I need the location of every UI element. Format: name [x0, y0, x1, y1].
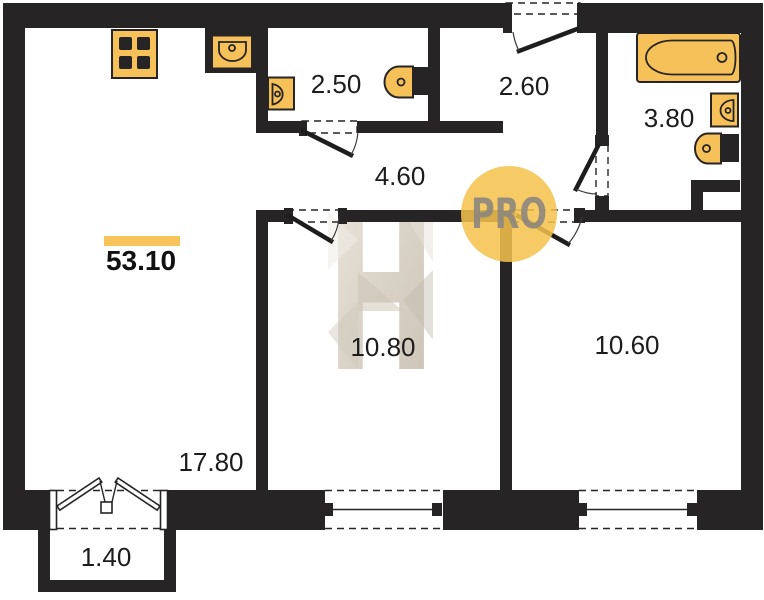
wall-bath-left [596, 32, 608, 135]
watermark-h: H [326, 169, 436, 420]
wall-bottom-c [443, 490, 579, 530]
room-label-balcony: 1.40 [81, 542, 132, 572]
duct-niche-left [691, 180, 703, 211]
room-label-entrance-hall: 2.60 [499, 71, 550, 101]
room-label-bedroom-2: 10.60 [594, 330, 659, 360]
room-label-bedroom: 10.80 [350, 332, 415, 362]
pro-badge-text: PRO [471, 189, 547, 238]
wall-top-left [3, 3, 512, 28]
toilet-icon [695, 134, 739, 164]
wall-right [741, 3, 763, 530]
washbasin-icon [268, 78, 294, 110]
bathtub-icon [637, 33, 740, 82]
floor-plan-svg: H [0, 0, 764, 600]
door-handle [101, 502, 112, 513]
kitchen-sink-icon [205, 28, 258, 73]
bath-door-jamb-bottom [595, 196, 609, 211]
room-label-living-kitchen: 17.80 [178, 447, 243, 477]
entrance-jamb [503, 14, 512, 33]
room-label-wc: 2.50 [311, 69, 362, 99]
balcony-wall-bottom [38, 580, 176, 592]
wall-top-right [577, 3, 763, 33]
room-label-corridor: 4.60 [375, 161, 426, 191]
floor-plan-canvas: H [0, 0, 764, 600]
washbasin-icon [711, 94, 738, 127]
wall-bottom-a [3, 490, 52, 530]
wall-wc-bottom-b [357, 121, 503, 133]
wall-living-bedroom [256, 210, 268, 490]
wall-corridor-c [583, 210, 763, 222]
stove-icon [112, 30, 157, 78]
total-area-label: 53.10 [106, 245, 176, 276]
wall-bottom-b [167, 490, 325, 530]
wall-left [3, 3, 25, 530]
wall-bottom-d [697, 490, 763, 530]
watermark-pro-badge: PRO [461, 166, 557, 262]
room-label-bathroom: 3.80 [644, 103, 695, 133]
wall-wc-bottom-a [256, 121, 302, 133]
toilet-icon [385, 67, 431, 98]
